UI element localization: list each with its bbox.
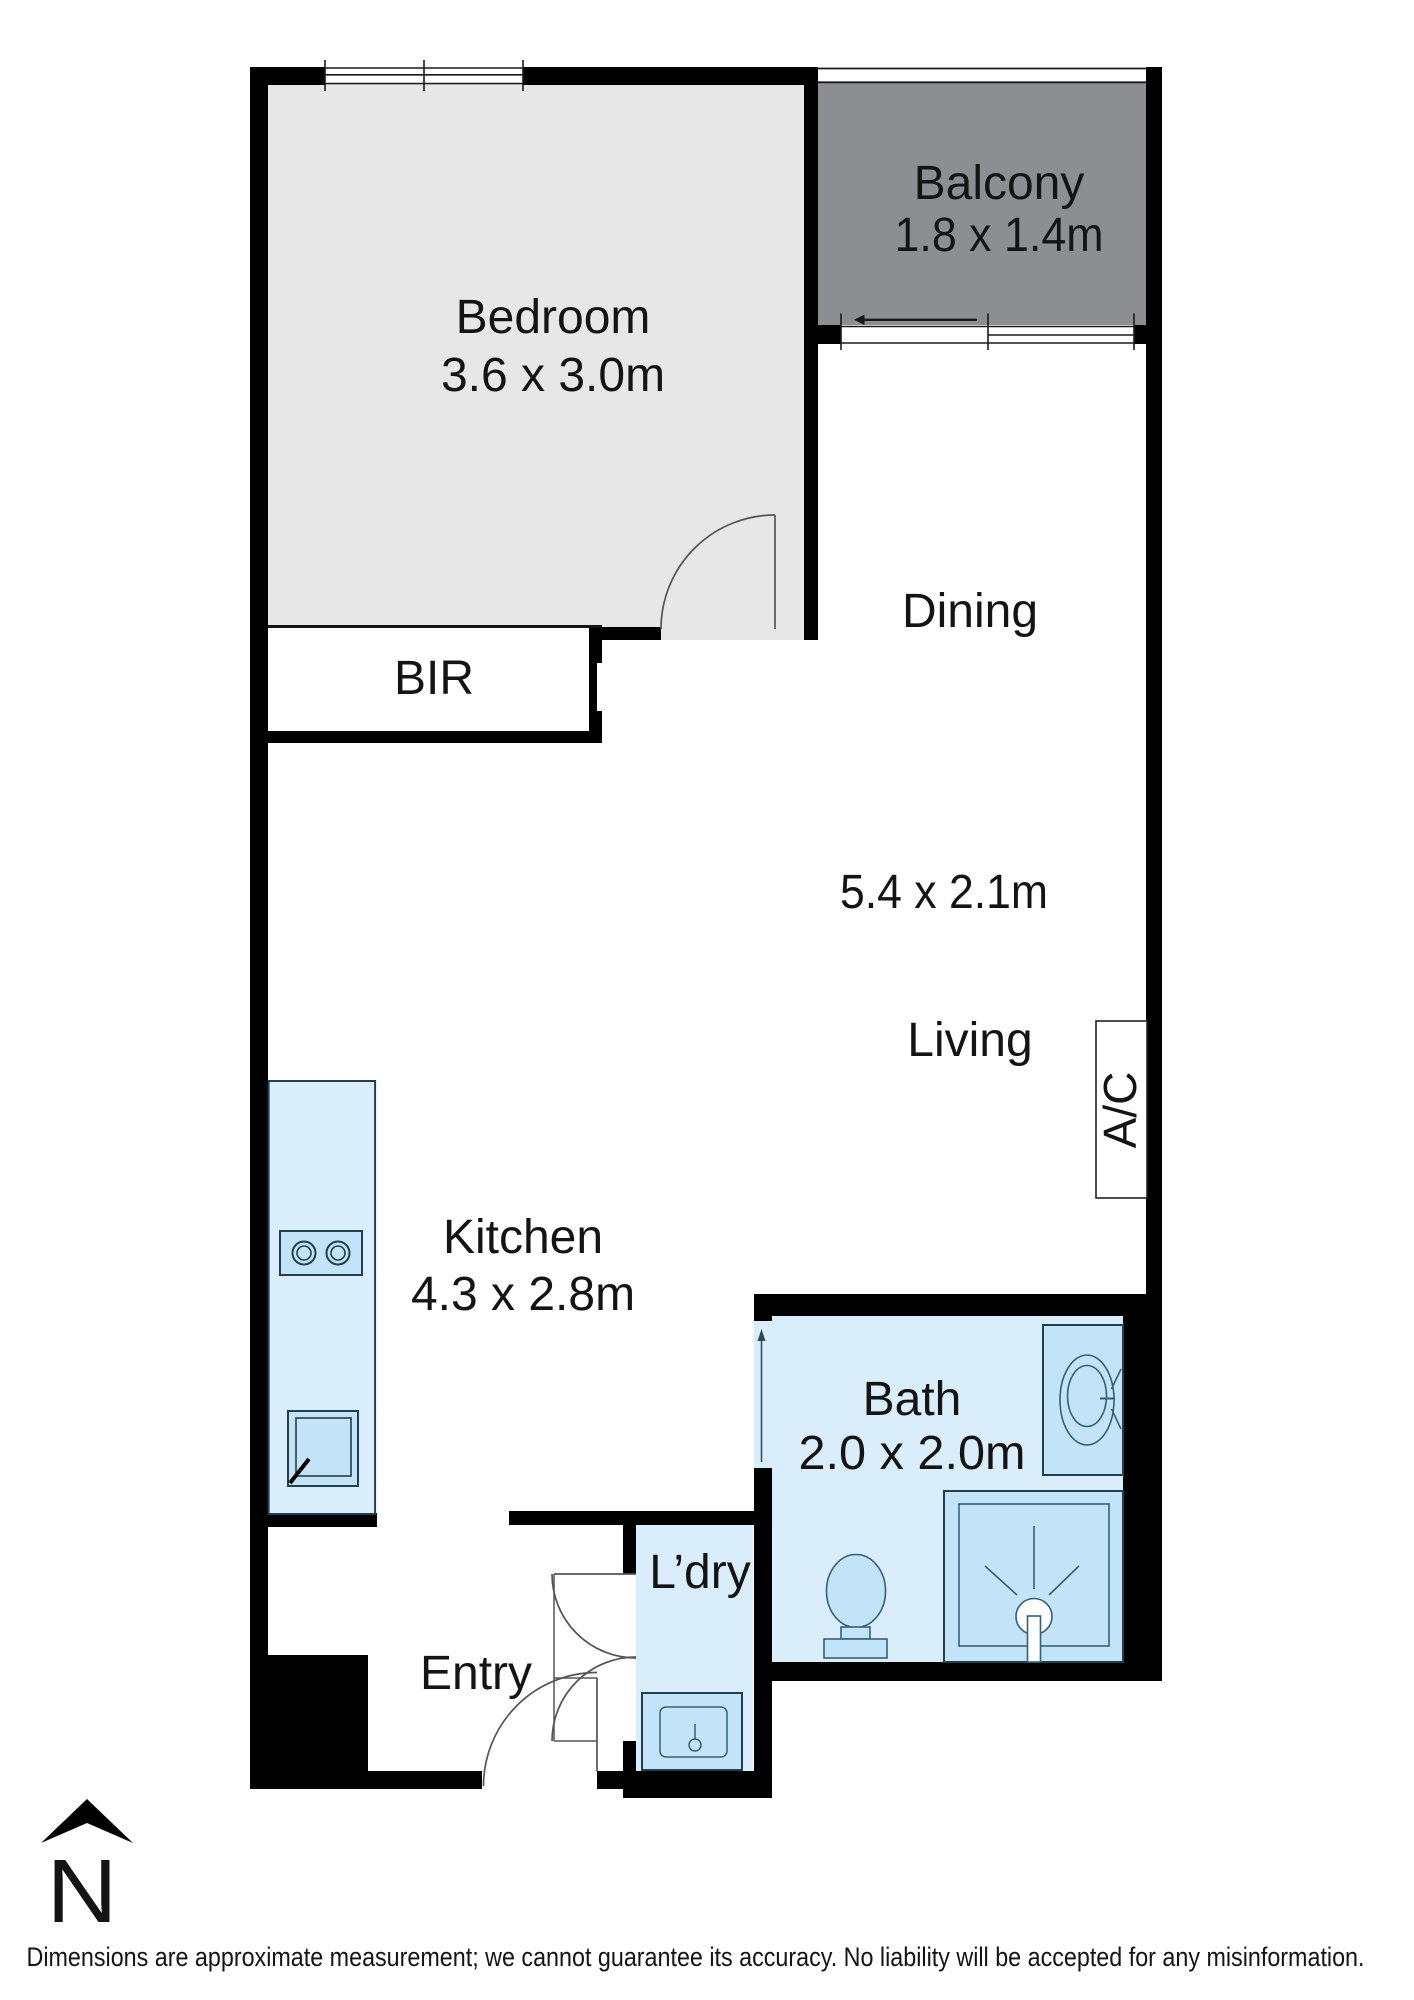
- svg-text:L’dry: L’dry: [649, 1546, 750, 1599]
- svg-text:Balcony: Balcony: [914, 157, 1085, 210]
- svg-text:Bath: Bath: [863, 1373, 962, 1426]
- svg-text:Dining: Dining: [902, 585, 1038, 638]
- svg-text:3.6 x 3.0m: 3.6 x 3.0m: [441, 349, 665, 402]
- svg-text:A/C: A/C: [1094, 1072, 1146, 1149]
- svg-text:N: N: [47, 1842, 118, 1942]
- svg-text:5.4 x 2.1m: 5.4 x 2.1m: [840, 866, 1048, 919]
- svg-text:2.0 x 2.0m: 2.0 x 2.0m: [799, 1427, 1026, 1480]
- svg-text:Living: Living: [907, 1014, 1032, 1067]
- svg-text:BIR: BIR: [394, 652, 474, 705]
- svg-text:Bedroom: Bedroom: [456, 291, 651, 344]
- svg-text:Kitchen: Kitchen: [443, 1211, 603, 1264]
- svg-text:1.8 x 1.4m: 1.8 x 1.4m: [895, 209, 1104, 262]
- svg-text:Dimensions are approximate mea: Dimensions are approximate measurement; …: [27, 1942, 1365, 1972]
- svg-text:Entry: Entry: [420, 1647, 532, 1700]
- svg-text:4.3 x 2.8m: 4.3 x 2.8m: [411, 1268, 635, 1321]
